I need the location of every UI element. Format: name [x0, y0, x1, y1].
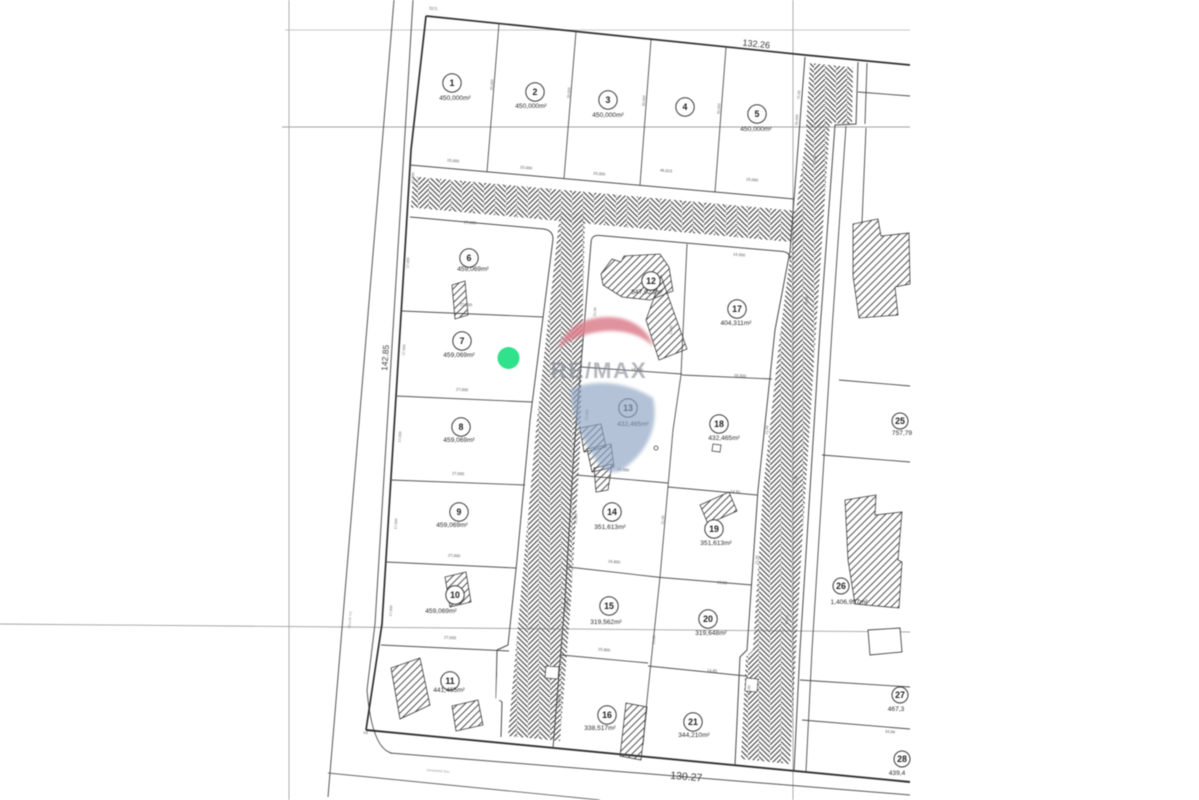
- svg-text:25: 25: [895, 416, 905, 426]
- svg-text:5: 5: [755, 109, 760, 119]
- svg-text:21: 21: [688, 717, 698, 727]
- svg-text:450,000m²: 450,000m²: [740, 126, 772, 133]
- svg-text:SB.: SB.: [363, 731, 369, 735]
- svg-text:7: 7: [460, 336, 465, 346]
- svg-text:12: 12: [646, 276, 656, 286]
- svg-text:441,465m²: 441,465m²: [433, 687, 465, 694]
- svg-text:14: 14: [607, 507, 617, 517]
- svg-text:432,465m²: 432,465m²: [708, 435, 740, 442]
- svg-text:2: 2: [533, 87, 538, 97]
- svg-text:75,00: 75,00: [813, 155, 818, 164]
- svg-text:21,00: 21,00: [755, 555, 760, 564]
- svg-text:20: 20: [703, 614, 713, 624]
- svg-text:10: 10: [450, 590, 460, 600]
- svg-text:15: 15: [604, 601, 614, 611]
- svg-text:547,023m²: 547,023m²: [631, 289, 663, 296]
- svg-text:21,00: 21,00: [652, 635, 657, 644]
- svg-text:15,80: 15,80: [717, 580, 728, 586]
- svg-text:75,00: 75,00: [797, 90, 802, 99]
- svg-text:21,00: 21,00: [747, 685, 752, 694]
- svg-text:450,000m²: 450,000m²: [592, 112, 624, 119]
- svg-text:27: 27: [895, 690, 905, 700]
- svg-text:1: 1: [450, 78, 455, 88]
- svg-text:21,00: 21,00: [669, 325, 674, 334]
- svg-text:8: 8: [459, 422, 464, 432]
- svg-text:27,000: 27,000: [456, 387, 469, 393]
- svg-text:34,86: 34,86: [885, 729, 896, 735]
- svg-text:RE/MAX: RE/MAX: [551, 358, 648, 383]
- svg-text:28: 28: [897, 754, 907, 764]
- svg-text:757,79: 757,79: [892, 430, 913, 437]
- svg-text:351,613m²: 351,613m²: [700, 540, 732, 547]
- svg-text:450,000m²: 450,000m²: [439, 95, 471, 102]
- svg-text:459,069m²: 459,069m²: [425, 608, 457, 615]
- svg-text:21,00: 21,00: [593, 307, 598, 316]
- svg-text:75,00: 75,00: [805, 295, 810, 304]
- svg-text:3: 3: [606, 95, 611, 105]
- svg-text:450,000m²: 450,000m²: [515, 103, 547, 110]
- svg-text:27,000: 27,000: [452, 471, 465, 477]
- svg-text:27,000: 27,000: [448, 553, 461, 559]
- svg-text:18: 18: [714, 419, 724, 429]
- svg-text:27,000: 27,000: [444, 635, 457, 641]
- svg-text:142.85: 142.85: [379, 344, 391, 371]
- svg-text:319,562m²: 319,562m²: [590, 619, 622, 626]
- svg-text:27,000: 27,000: [460, 302, 473, 308]
- svg-text:6: 6: [467, 253, 472, 263]
- svg-text:16: 16: [602, 710, 612, 720]
- svg-text:19: 19: [709, 524, 719, 534]
- svg-text:26: 26: [836, 581, 846, 591]
- svg-text:467,3: 467,3: [888, 706, 905, 713]
- svg-text:4: 4: [683, 102, 688, 112]
- svg-text:338,517m²: 338,517m²: [584, 725, 616, 732]
- svg-text:439,4: 439,4: [889, 770, 906, 777]
- svg-text:459,069m²: 459,069m²: [443, 352, 475, 359]
- svg-text:21,00: 21,00: [661, 515, 666, 524]
- svg-text:459,069m²: 459,069m²: [457, 266, 489, 273]
- svg-text:459,069m²: 459,069m²: [443, 437, 475, 444]
- svg-text:351,613m²: 351,613m²: [594, 524, 626, 531]
- svg-text:75,00: 75,00: [794, 475, 799, 484]
- svg-text:344,210m²: 344,210m²: [678, 732, 710, 739]
- svg-text:459,069m²: 459,069m²: [436, 522, 468, 529]
- svg-text:17: 17: [732, 304, 742, 314]
- svg-text:14,85: 14,85: [707, 668, 718, 674]
- svg-text:75,00: 75,00: [785, 615, 790, 624]
- svg-text:319,648m²: 319,648m²: [695, 630, 727, 637]
- svg-text:27,000: 27,000: [464, 220, 477, 226]
- svg-text:404,311m²: 404,311m²: [720, 320, 752, 327]
- svg-text:14,50: 14,50: [730, 489, 741, 495]
- svg-text:1,406,957m²: 1,406,957m²: [830, 599, 868, 606]
- svg-text:11: 11: [445, 676, 454, 686]
- svg-text:9: 9: [457, 507, 462, 517]
- svg-text:bcs.: bcs.: [429, 6, 438, 12]
- svg-text:21,00: 21,00: [765, 425, 770, 434]
